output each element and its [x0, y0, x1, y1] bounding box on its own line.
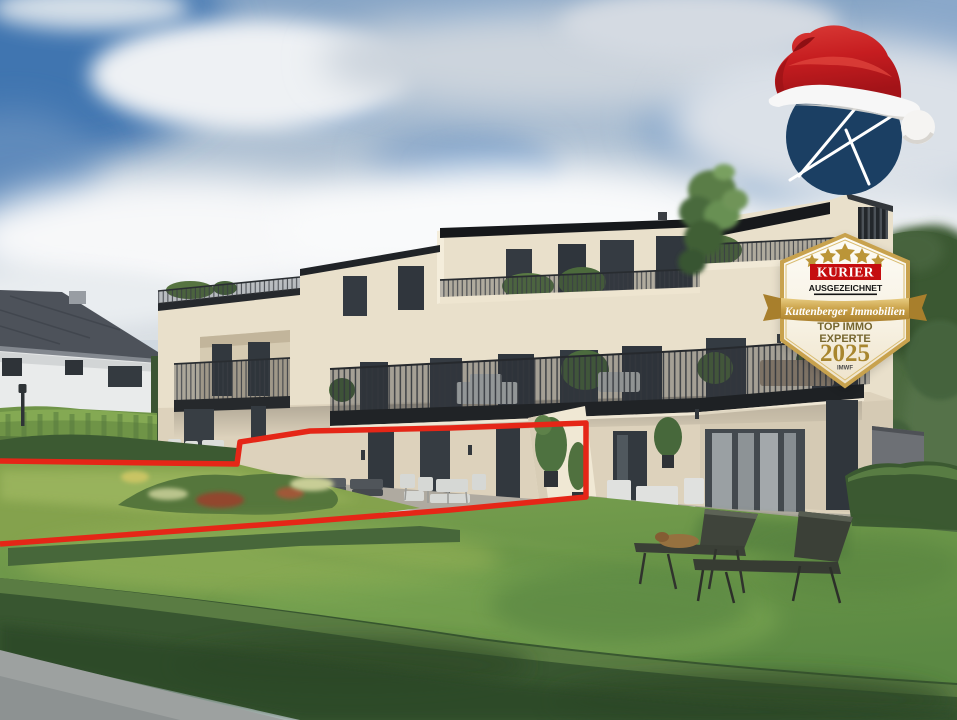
svg-text:IMWF: IMWF — [837, 366, 853, 372]
svg-text:TOP IMMO: TOP IMMO — [817, 321, 873, 333]
svg-text:KURIER: KURIER — [817, 265, 874, 280]
svg-text:2025: 2025 — [820, 340, 870, 367]
svg-text:AUSGEZEICHNET: AUSGEZEICHNET — [809, 283, 883, 293]
svg-text:Kuttenberger Immobilien: Kuttenberger Immobilien — [784, 306, 905, 318]
